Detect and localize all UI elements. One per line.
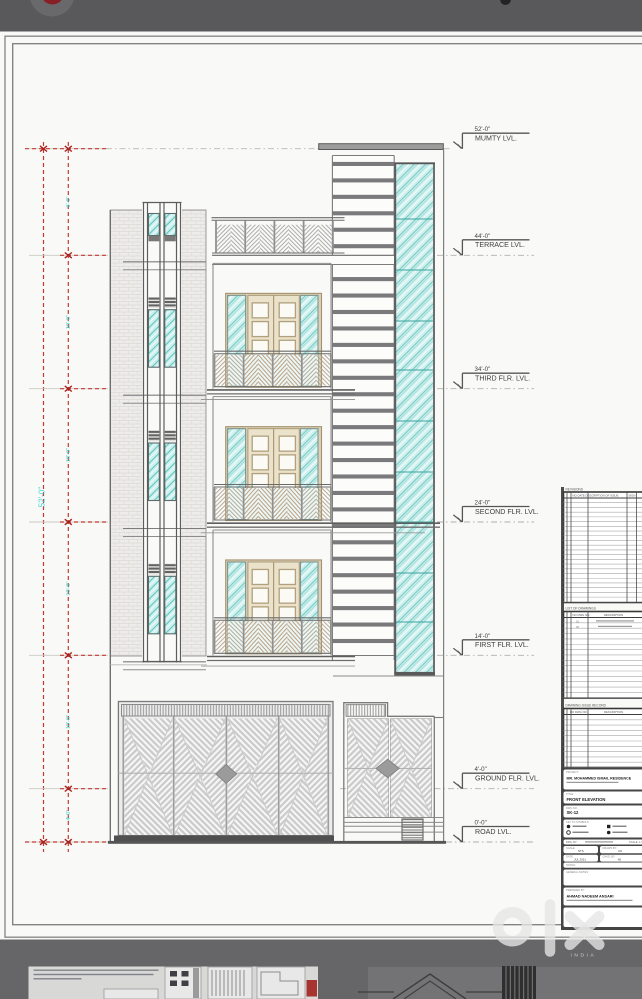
svg-text:SCALE: 1:75: SCALE: 1:75 xyxy=(629,840,642,844)
svg-text:ROAD LVL.: ROAD LVL. xyxy=(475,828,512,836)
svg-text:GENERAL NOTES:: GENERAL NOTES: xyxy=(566,870,589,874)
svg-text:NOTES:: NOTES: xyxy=(566,863,576,867)
svg-text:44'-0": 44'-0" xyxy=(475,233,491,240)
svg-text:INDIA: INDIA xyxy=(571,953,597,959)
svg-text:THIRD FLR. LVL.: THIRD FLR. LVL. xyxy=(475,375,530,383)
svg-text:MR. MOHAMMED ISMAIL RESIDENCE: MR. MOHAMMED ISMAIL RESIDENCE xyxy=(567,777,632,781)
svg-text:DRAWN BY:: DRAWN BY: xyxy=(603,846,618,850)
svg-text:24'-0": 24'-0" xyxy=(475,500,491,507)
svg-text:4'-0": 4'-0" xyxy=(475,766,487,773)
svg-text:REVISIONS: REVISIONS xyxy=(566,488,583,492)
svg-text:DRG. BY:: DRG. BY: xyxy=(566,840,578,844)
svg-text:NTS: NTS xyxy=(578,849,584,853)
svg-text:34'-0": 34'-0" xyxy=(475,366,491,373)
svg-text:CHKD. BY:: CHKD. BY: xyxy=(603,855,616,859)
svg-text:02: 02 xyxy=(576,625,580,629)
svg-text:SCALE:: SCALE: xyxy=(566,846,576,850)
svg-text:10'-0": 10'-0" xyxy=(66,315,72,329)
svg-text:DRAWING ISSUE RECORD: DRAWING ISSUE RECORD xyxy=(566,703,607,707)
svg-text:01: 01 xyxy=(576,620,580,624)
svg-text:10'-0": 10'-0" xyxy=(66,448,72,462)
svg-text:JUL 2021: JUL 2021 xyxy=(574,857,586,861)
svg-text:DESCRIPTION: DESCRIPTION xyxy=(604,710,623,714)
svg-text:MUMTY LVL.: MUMTY LVL. xyxy=(475,135,517,143)
svg-text:PREPARED BY:: PREPARED BY: xyxy=(566,888,585,892)
svg-text:SK-12: SK-12 xyxy=(567,810,580,815)
svg-text:DATE:: DATE: xyxy=(566,855,574,859)
svg-text:DESCRIPTION: DESCRIPTION xyxy=(604,613,623,617)
svg-text:14'-0": 14'-0" xyxy=(475,633,491,640)
svg-text:TERRACE LVL.: TERRACE LVL. xyxy=(475,241,525,249)
svg-text:SECOND FLR. LVL.: SECOND FLR. LVL. xyxy=(475,508,539,516)
svg-text:LIST OF DRAWINGS: LIST OF DRAWINGS xyxy=(566,607,596,611)
svg-text:GROUND FLR. LVL.: GROUND FLR. LVL. xyxy=(475,775,540,783)
svg-text:AN: AN xyxy=(618,849,622,853)
svg-text:4'-0": 4'-0" xyxy=(66,810,72,821)
svg-text:NO DWG NO.: NO DWG NO. xyxy=(573,613,591,617)
svg-text:10'-0": 10'-0" xyxy=(66,582,72,596)
svg-text:MI: MI xyxy=(618,857,621,861)
svg-text:10'-0": 10'-0" xyxy=(66,715,72,729)
svg-text:52'-0": 52'-0" xyxy=(38,487,47,508)
svg-text:FRONT ELEVATION: FRONT ELEVATION xyxy=(567,797,606,802)
svg-text:FIRST FLR. LVL.: FIRST FLR. LVL. xyxy=(475,641,529,649)
svg-text:PROJECT:: PROJECT: xyxy=(566,770,579,774)
svg-text:KEY TO SYMBOLS:: KEY TO SYMBOLS: xyxy=(566,820,590,824)
svg-text:TITLE:: TITLE: xyxy=(566,792,574,796)
svg-text:52'-0": 52'-0" xyxy=(475,126,491,133)
svg-text:SIGN: SIGN xyxy=(629,494,636,498)
svg-text:8'-0": 8'-0" xyxy=(66,196,72,207)
svg-text:AHMAD NADEEM ANSARI: AHMAD NADEEM ANSARI xyxy=(567,895,614,899)
svg-text:NO DWG NO.: NO DWG NO. xyxy=(570,710,588,714)
svg-text:0'-0": 0'-0" xyxy=(475,820,487,827)
svg-text:NO DATE DESCRIPTION OF ISSU: NO DATE DESCRIPTION OF ISSUE xyxy=(573,494,619,498)
